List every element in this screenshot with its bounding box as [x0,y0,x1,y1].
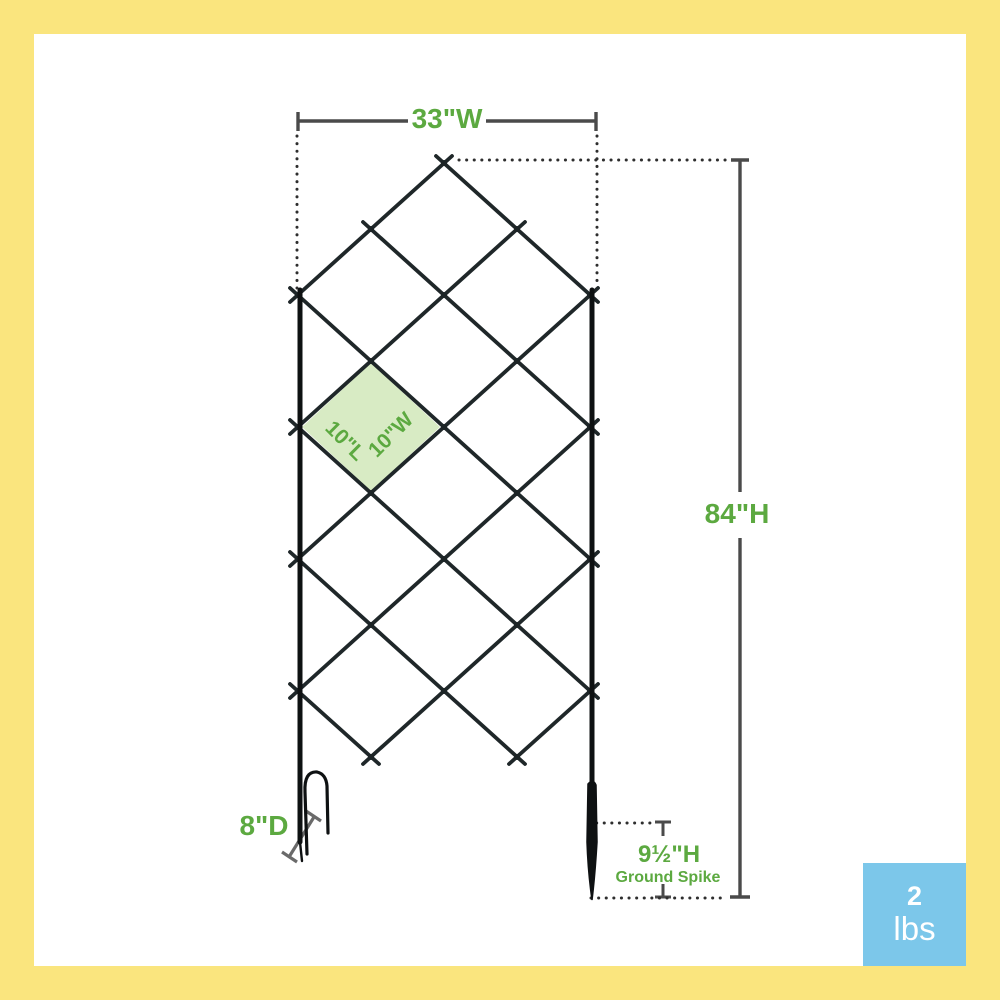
product-diagram-image: 2 lbs [0,0,1000,1000]
width-label: 33"W [412,105,483,133]
depth-label: 8"D [239,812,288,840]
ground-spike [587,781,597,900]
spike-height-label: 9½"H [638,843,700,867]
dotted-guides [297,136,729,898]
trellis-lattice [290,156,598,764]
highlighted-cell [302,363,440,491]
spike-caption-label: Ground Spike [616,870,721,886]
height-label: 84"H [705,500,770,528]
trellis-diagram-svg [0,0,1000,1000]
